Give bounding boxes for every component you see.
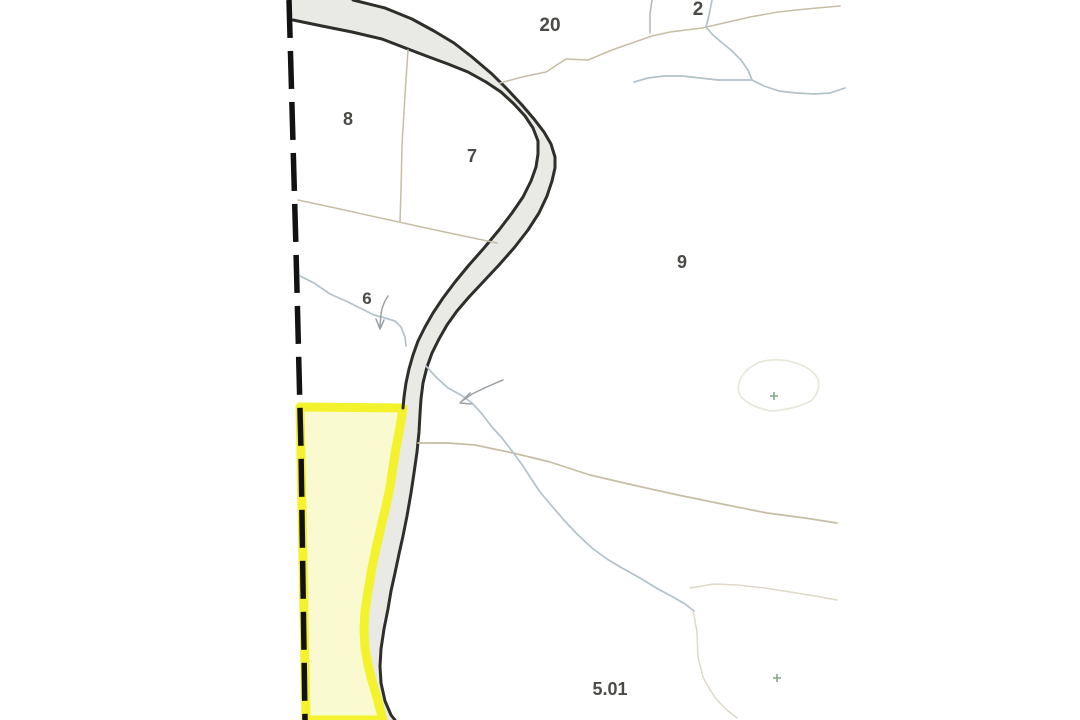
map-background bbox=[0, 0, 1080, 720]
parcel-label-20[interactable]: 20 bbox=[539, 15, 560, 36]
parcel-label-9[interactable]: 9 bbox=[677, 252, 687, 272]
parcel-label-6[interactable]: 6 bbox=[362, 289, 371, 308]
parcel-label-5-01[interactable]: 5.01 bbox=[592, 679, 627, 699]
parcel-map-canvas: 20 2 8 7 6 9 5.01 bbox=[0, 0, 1080, 720]
parcel-label-7[interactable]: 7 bbox=[467, 146, 477, 166]
parcel-label-2[interactable]: 2 bbox=[693, 0, 704, 20]
parcel-map-page: 20 2 8 7 6 9 5.01 bbox=[0, 0, 1080, 720]
parcel-label-8[interactable]: 8 bbox=[343, 109, 353, 129]
